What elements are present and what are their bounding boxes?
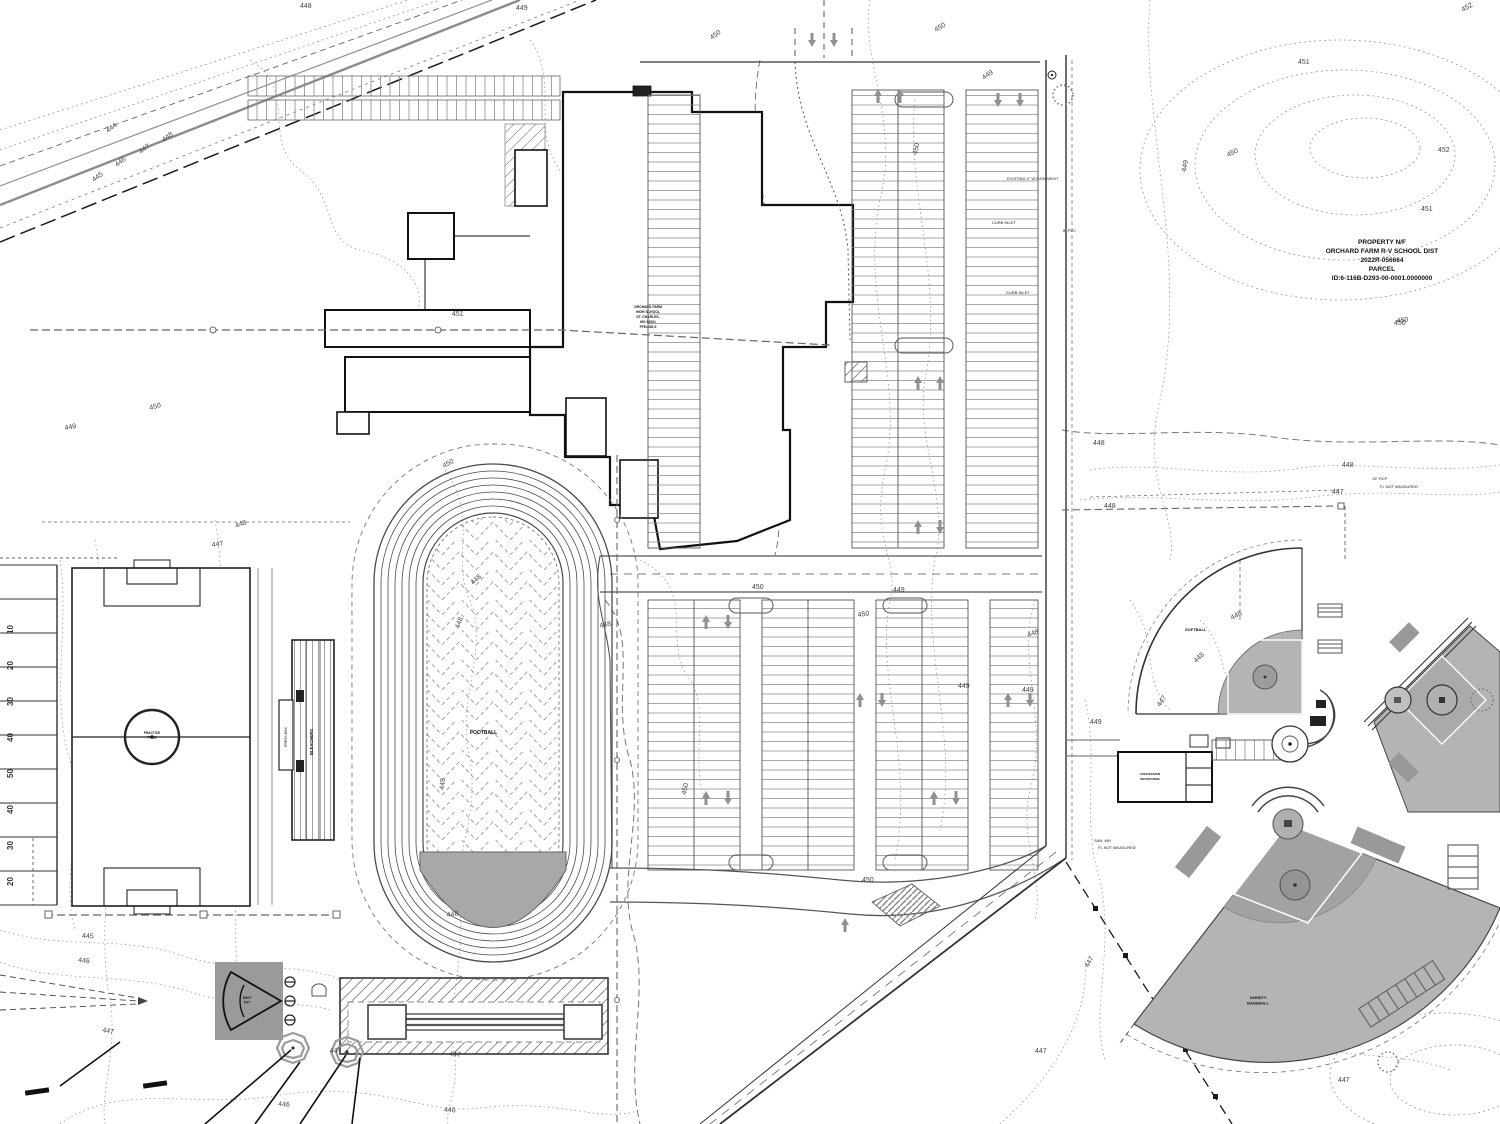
map-label: 450	[709, 29, 723, 42]
map-label: 446	[78, 957, 90, 965]
site-plan-drawing: ORCHARD FARM HIGH SCHOOL ST. CHARLES, MO…	[0, 0, 1500, 1124]
map-label: 452	[1438, 147, 1450, 154]
map-label: 50	[6, 769, 15, 778]
map-label: 451	[1421, 206, 1433, 213]
yard-numbers: 1020304050403020	[6, 625, 15, 886]
map-label: CURB INLET	[992, 220, 1016, 225]
map-label: 450	[752, 584, 764, 591]
tie-down-rings	[285, 977, 295, 1025]
map-label: CURB INLET	[1006, 290, 1030, 295]
map-label: 450	[1394, 320, 1406, 327]
map-label: 448	[1230, 610, 1244, 622]
softball-label: SOFTBALL	[1185, 627, 1207, 632]
track-complex: FOOTBALL	[340, 444, 638, 1054]
map-label: 449	[1090, 719, 1102, 726]
map-label: 445	[91, 171, 105, 184]
flow-arrow	[856, 693, 864, 707]
map-label: 451	[452, 311, 464, 318]
leader-lines	[25, 1042, 360, 1124]
flow-arrow	[830, 33, 838, 47]
map-label: 20	[6, 661, 15, 670]
map-label: FL NOT MEASURED	[1098, 845, 1136, 850]
map-label: 450	[149, 402, 162, 412]
softball-field: SOFTBALL	[1128, 540, 1342, 747]
flow-arrow	[841, 918, 849, 932]
map-label: 20	[6, 877, 15, 886]
north-parking-rows	[248, 76, 560, 206]
map-label: 448	[161, 131, 175, 144]
concession-building: CONCESSION RESTROOMS	[1118, 726, 1308, 802]
map-label: 448	[1193, 651, 1206, 664]
east-baseball-field	[1364, 618, 1500, 812]
map-label: 450	[442, 458, 456, 470]
soccer-field: PRACTICE FIELD	[72, 560, 250, 914]
property-line: PROPERTY N/F	[1358, 239, 1406, 246]
map-label: 447	[1035, 1048, 1047, 1055]
map-label: 447	[1332, 489, 1344, 496]
map-label: 449	[1022, 687, 1034, 694]
shot-put-area: SHOT PUT	[25, 962, 363, 1124]
map-label: 450	[862, 877, 874, 884]
map-label: 446	[114, 156, 128, 169]
map-label: 448	[234, 519, 247, 530]
infield	[427, 517, 559, 909]
varsity-label: VARSITY	[1249, 995, 1266, 1000]
map-label: 452	[1461, 2, 1475, 14]
map-label: 446	[444, 1107, 456, 1114]
property-line: 2022R-056664	[1360, 257, 1403, 264]
map-label: 448	[1104, 503, 1116, 510]
concession-label: CONCESSION	[1140, 772, 1160, 776]
tree-symbol	[1378, 1052, 1398, 1072]
map-label: 449	[516, 5, 528, 12]
map-label: 449	[893, 587, 905, 594]
grandstand-label: BLEACHERS	[309, 729, 314, 755]
map-label: 40	[6, 733, 15, 742]
map-label: 447	[330, 1047, 342, 1055]
varsity-label: BASEBALL	[1247, 1001, 1269, 1006]
long-jump-area	[340, 978, 608, 1054]
shotput-label: SHOT	[243, 996, 252, 1000]
map-label: 449	[981, 69, 995, 81]
map-label: 15" RCP	[1372, 476, 1388, 481]
school-building: ORCHARD FARM HIGH SCHOOL ST. CHARLES, MO…	[325, 86, 853, 549]
main-parking-lot	[598, 0, 1066, 916]
map-label: 10	[6, 625, 15, 634]
map-label: 449	[1181, 160, 1190, 173]
property-line: PARCEL	[1369, 266, 1395, 273]
map-label: 446	[278, 1101, 290, 1109]
softball-bleachers	[1318, 604, 1342, 653]
grandstand: PRESS BOX BLEACHERS	[258, 568, 334, 905]
map-label: 450	[1226, 147, 1240, 158]
map-label: 448	[300, 3, 312, 10]
practice-field-label: FIELD	[147, 736, 157, 740]
tree-symbol	[1053, 85, 1073, 105]
map-label: 448	[446, 910, 459, 919]
flow-arrow	[808, 33, 816, 47]
map-label: 447	[449, 1051, 461, 1059]
map-label: 30	[6, 841, 15, 850]
map-label: 449	[958, 683, 970, 690]
swale	[0, 975, 148, 1010]
concession-label: RESTROOMS	[1140, 777, 1159, 781]
map-label: FL NOT MEASURED	[1380, 484, 1418, 489]
map-label: 448	[599, 621, 612, 630]
map-label: 449	[64, 423, 77, 432]
map-label: EXISTING 4" W EASEMENT	[1007, 176, 1059, 181]
site-plan-sheet: ORCHARD FARM HIGH SCHOOL ST. CHARLES, MO…	[0, 0, 1500, 1124]
map-label: 447	[1084, 955, 1096, 969]
infield-label: FOOTBALL	[470, 730, 497, 736]
map-label: 450	[857, 610, 870, 619]
map-label: 447	[102, 1027, 115, 1036]
map-label: 448	[1342, 462, 1354, 469]
shotput-label: PUT	[244, 1001, 250, 1005]
map-label: SAN. MH	[1094, 838, 1111, 843]
map-label: 8" PVC	[1063, 228, 1076, 233]
map-label: 445	[82, 933, 94, 940]
map-label: 450	[934, 22, 948, 34]
map-label: 451	[1298, 59, 1310, 66]
map-label: 447	[1338, 1077, 1350, 1084]
practice-field-label: PRACTICE	[144, 731, 160, 735]
press-box-label: PRESS BOX	[284, 726, 288, 746]
track-d-zone	[420, 852, 566, 928]
property-note: PROPERTY N/F ORCHARD FARM R-V SCHOOL DIS…	[1326, 239, 1439, 282]
map-label: 40	[6, 805, 15, 814]
map-label: 447	[211, 540, 224, 549]
property-line: ID:6-116B-D293-00-0001.0000000	[1332, 275, 1433, 282]
property-line: ORCHARD FARM R-V SCHOOL DIST	[1326, 248, 1439, 255]
map-label: 449	[439, 778, 447, 790]
map-label: 448	[1093, 440, 1105, 447]
map-label: 30	[6, 697, 15, 706]
